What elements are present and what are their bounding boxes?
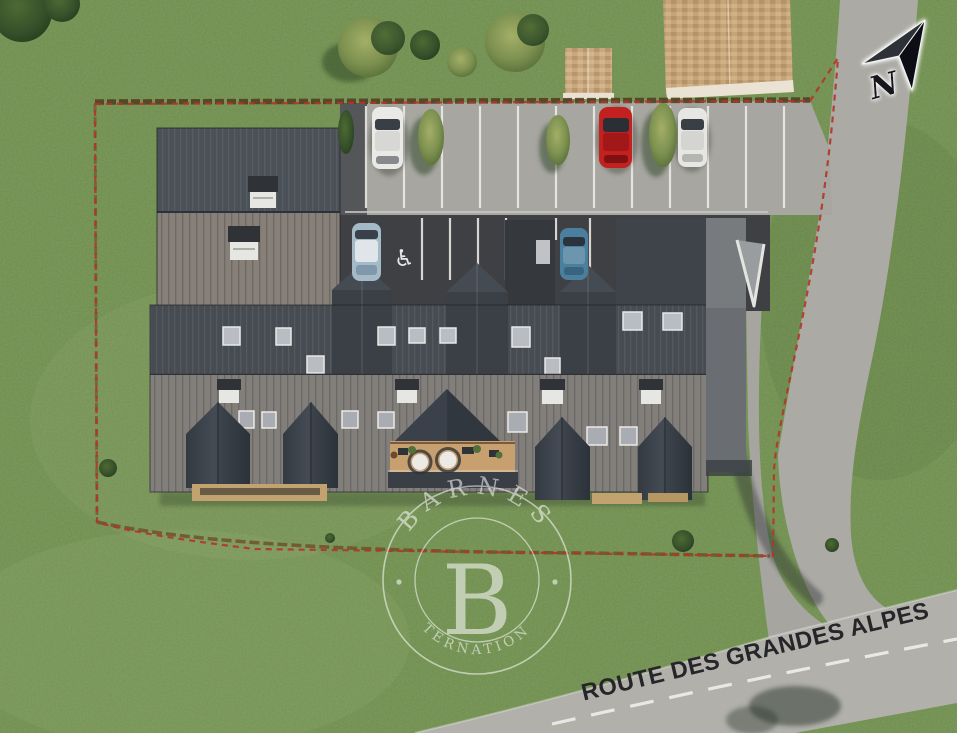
- chimney: [228, 226, 260, 260]
- watermark-dot: [552, 579, 557, 584]
- site-plan-render: ♿ ♿: [0, 0, 957, 733]
- parasol: [412, 454, 428, 470]
- car-blue: [560, 228, 588, 280]
- large-shed-roof: [663, 0, 794, 99]
- chimney: [248, 176, 278, 208]
- watermark-dot: [396, 579, 401, 584]
- accessible-parking-icon: ♿: [394, 246, 415, 272]
- aerial-render-canvas: ♿ ♿: [0, 0, 957, 733]
- parasol: [440, 452, 457, 469]
- left-chalet-building: [157, 128, 340, 310]
- car-white: [673, 108, 711, 172]
- small-shed-roof: [563, 48, 614, 99]
- car-red: [596, 106, 638, 174]
- car-white: [369, 107, 409, 176]
- car-light-blue: [352, 223, 381, 281]
